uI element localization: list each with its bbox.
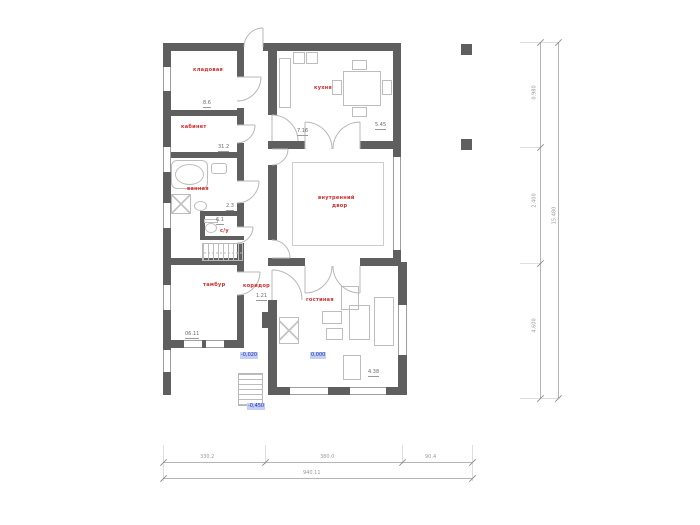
dim-right-1: 0.980 [533, 85, 538, 99]
wall-corridor-seg3 [237, 143, 244, 181]
room-label-study: кабинет [181, 125, 207, 130]
area-label-door: 1.21 [256, 294, 267, 301]
level-badge-entrance: -0,450 [247, 403, 265, 410]
wall-right-kitchen [393, 43, 401, 157]
area-label-shower: 2.3 [226, 204, 234, 211]
wall-living-left [268, 300, 277, 395]
room-label-wc: с/у [220, 229, 229, 234]
window-vestibule-2 [206, 340, 224, 348]
kitchen-hob-1 [293, 52, 305, 64]
dimension-line-bottom-segments [163, 462, 473, 463]
window-left-3 [163, 203, 171, 228]
window-living-right [398, 305, 407, 355]
room-label-pantry: кладовая [193, 68, 223, 73]
window-courtyard-glazing [393, 157, 401, 250]
wall-vestibule-right-bottom [237, 295, 244, 343]
area-label-pantry: 8.6 [203, 101, 211, 108]
wall-bottom-living [268, 387, 407, 395]
wall-kitchen-left [268, 43, 277, 115]
room-label-living: гостиная [306, 298, 334, 303]
dining-table [343, 71, 381, 106]
wall-corridor-seg2 [237, 108, 244, 125]
dining-chair-top [352, 60, 367, 70]
dim-bottom-3: 90.4 [425, 455, 436, 460]
wall-bottom-vestibule [163, 340, 244, 348]
center-table [349, 305, 370, 340]
window-left-1 [163, 67, 171, 91]
area-label-wc: 6.1 [216, 218, 224, 225]
kitchen-counter [279, 58, 291, 108]
dining-chair-bottom [352, 107, 367, 117]
room-label-vestibule: тамбур [203, 283, 226, 288]
dim-bottom-total: 940.11 [303, 471, 321, 476]
level-badge-corridor: -0,020 [240, 352, 258, 359]
dim-bottom-2: 380.0 [320, 455, 334, 460]
wall-wc-left [200, 211, 205, 238]
column [461, 139, 472, 150]
wall-courtyard-bottom-left [268, 258, 305, 266]
area-label-bathroom: 31.2 [218, 145, 229, 152]
dining-chair-right [382, 80, 392, 95]
room-label-bathroom: ванная [187, 187, 209, 192]
dim-right-2: 2.400 [533, 193, 538, 207]
window-living-bottom-1 [290, 387, 328, 395]
bathtub-basin [175, 164, 204, 185]
window-left-5 [163, 350, 171, 372]
floor-plan-canvas: кладовая кабинет ванная с/у тамбур корид… [0, 0, 700, 525]
room-label-courtyard-1: внутренний [318, 196, 355, 201]
sofa-right [374, 297, 394, 346]
dimension-line-right-segments [540, 42, 541, 398]
dim-right-3: 4.600 [533, 318, 538, 332]
kitchen-hob-2 [306, 52, 318, 64]
column [461, 44, 472, 55]
wall-wc-top [200, 211, 244, 216]
sink [194, 201, 207, 211]
dim-bottom-1: 330.2 [200, 455, 214, 460]
coffee-table-1 [322, 311, 342, 324]
chimney-stub [262, 312, 269, 328]
room-label-courtyard-2: двор [332, 204, 347, 209]
dimension-line-right-total [558, 42, 559, 398]
level-badge-living: 0,000 [310, 352, 326, 359]
dim-right-total: 15.480 [552, 207, 557, 225]
area-label-kitchen: 7.16 [297, 129, 308, 136]
room-label-corridor: коридор [243, 284, 270, 289]
wall-courtyard-bottom-right [360, 258, 398, 266]
stair-entrance-steps [238, 373, 263, 406]
wall-corridor-seg1 [237, 51, 244, 77]
wall-study-bathroom [168, 152, 237, 158]
stair-interior [202, 243, 243, 261]
window-left-2 [163, 147, 171, 172]
area-label-living: 4.38 [368, 370, 379, 377]
coffee-table-2 [326, 328, 343, 340]
area-label-dining: 5.45 [375, 123, 386, 130]
bathroom-cabinet [211, 163, 227, 174]
fireplace [279, 317, 299, 344]
wall-courtyard-left [268, 165, 277, 240]
dining-chair-left [332, 80, 342, 95]
area-label-window: 06.11 [185, 332, 199, 339]
window-vestibule-1 [184, 340, 202, 348]
wall-vestibule-right-top [237, 265, 244, 272]
dimension-tick [555, 395, 562, 402]
wall-courtyard-top-right [360, 141, 393, 149]
shower-tray [171, 194, 191, 214]
wall-pantry-study [168, 110, 237, 116]
armchair-bottom [343, 355, 361, 380]
wall-top-kitchen [263, 43, 401, 51]
window-living-bottom-2 [350, 387, 386, 395]
dimension-line-bottom-total [163, 478, 473, 479]
wall-wc-bottom [200, 236, 244, 240]
window-left-4 [163, 285, 171, 310]
wall-top-left-block [163, 43, 244, 51]
wall-courtyard-top-left [268, 141, 305, 149]
room-label-kitchen: кухня [314, 86, 332, 91]
